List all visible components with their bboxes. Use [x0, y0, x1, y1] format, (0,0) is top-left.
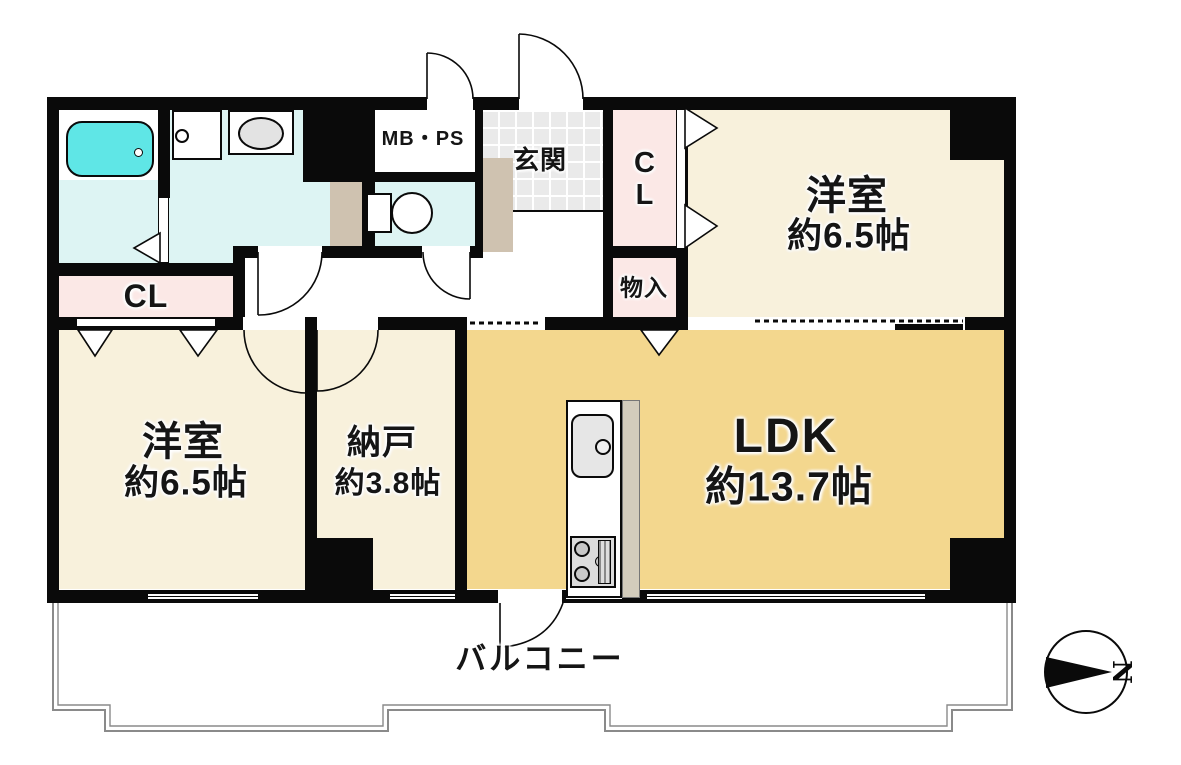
floorplan-canvas: N MB・PS 玄関 CL 物入 洋室 約6.5帖 CL 洋室 約6.5帖 納戸…	[0, 0, 1181, 765]
bath-folding-door-triangle-icon	[134, 233, 160, 263]
closet-upper-label: CL	[630, 147, 659, 211]
storage-room-area: 約3.8帖	[335, 469, 442, 499]
closet-upper-door-triangle-icon	[685, 108, 717, 148]
compass-north-label: N	[1106, 660, 1136, 684]
meter-pipe-space-label: MB・PS	[382, 129, 465, 149]
ldk-area: 約13.7帖	[705, 467, 873, 508]
closet-left-door-triangle-icon	[180, 330, 217, 356]
storage-room-door-arc	[317, 330, 378, 391]
meterbox-door-arc	[427, 53, 473, 99]
closet-left-label: CL	[124, 280, 169, 312]
toilet-door-arc	[423, 252, 470, 299]
ldk-name: LDK	[734, 413, 839, 461]
closet-left-door-triangle-icon	[78, 330, 112, 356]
bedroom-bl-door-arc	[244, 330, 307, 393]
compass-icon: N	[1045, 631, 1136, 713]
ldk-opening-triangle-icon	[641, 330, 678, 355]
western-room-bl-name: 洋室	[142, 422, 224, 462]
balcony-door-arc	[504, 603, 563, 647]
storage-box-label: 物入	[620, 277, 668, 300]
western-room-bl-area: 約6.5帖	[124, 466, 248, 501]
western-room-tr-area: 約6.5帖	[787, 219, 911, 254]
front-door-arc	[519, 34, 583, 99]
storage-room-name: 納戸	[347, 426, 417, 460]
washroom-door-arc	[258, 252, 322, 315]
western-room-tr-name: 洋室	[806, 176, 888, 216]
closet-upper-door-triangle-icon	[685, 205, 717, 248]
balcony-label: バルコニー	[455, 644, 624, 675]
bedroom-tr-sill	[895, 324, 963, 330]
entrance-label: 玄関	[513, 147, 567, 173]
